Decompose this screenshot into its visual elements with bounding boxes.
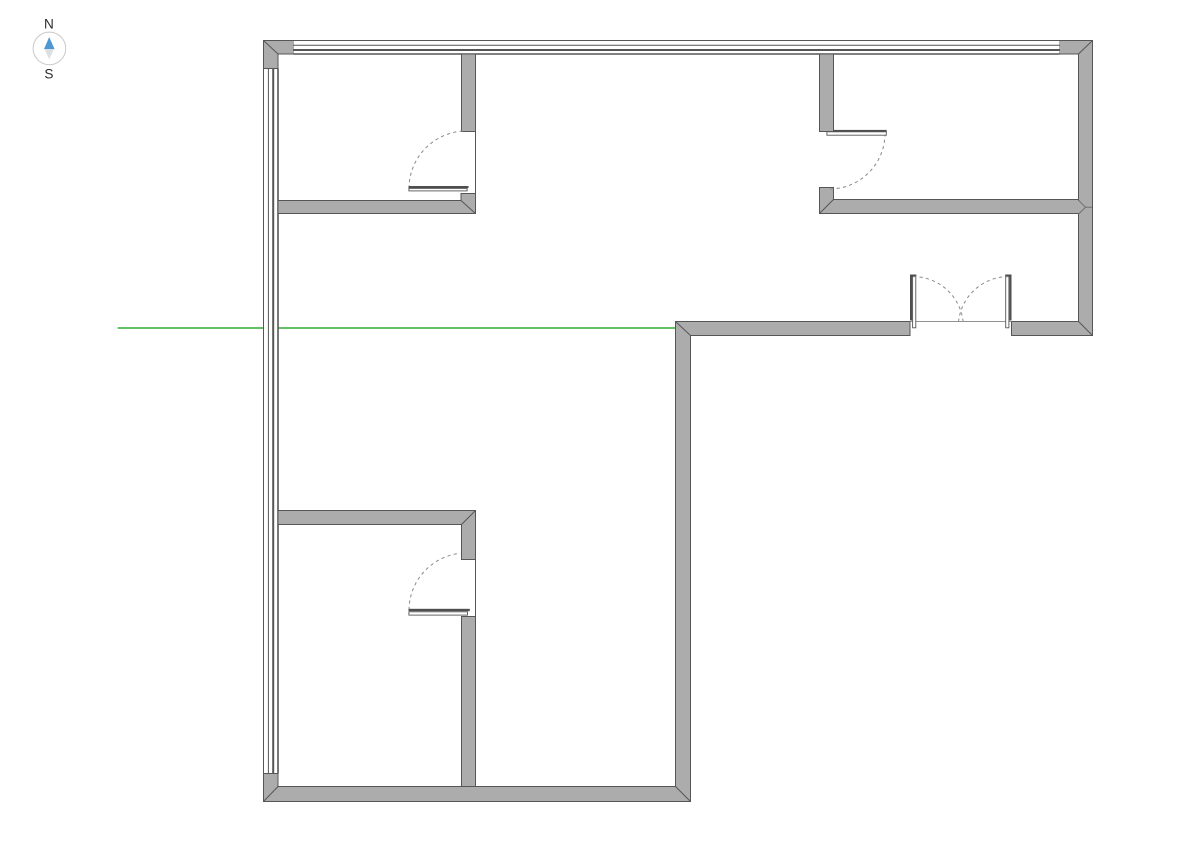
svg-text:S: S [44,67,53,82]
svg-text:N: N [44,16,54,31]
